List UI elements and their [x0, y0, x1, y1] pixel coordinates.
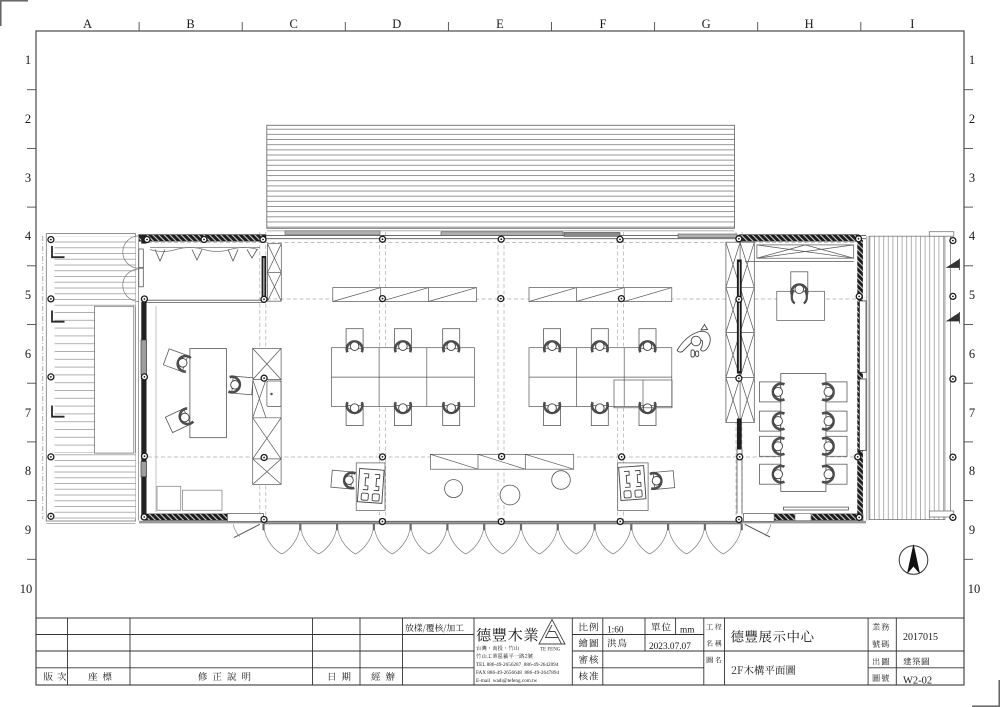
svg-text:2023.07.07: 2023.07.07 — [649, 642, 691, 652]
svg-text:E-mail wadi@tefeng.com.tw: E-mail wadi@tefeng.com.tw — [476, 677, 537, 684]
svg-text:8: 8 — [25, 464, 31, 478]
svg-text:9: 9 — [25, 523, 31, 537]
svg-text:6: 6 — [969, 347, 975, 361]
svg-text:F: F — [600, 17, 607, 31]
svg-text:7: 7 — [969, 406, 975, 420]
svg-text:TEL 886-49-2656287 886-49-264: TEL 886-49-2656287 886-49-2642094 — [476, 662, 559, 668]
svg-text:C: C — [290, 17, 298, 31]
svg-text:10: 10 — [968, 582, 981, 596]
svg-text:5: 5 — [25, 288, 31, 302]
svg-text:4: 4 — [969, 229, 976, 243]
svg-text:B: B — [186, 17, 194, 31]
svg-text:I: I — [910, 17, 914, 31]
svg-text:3: 3 — [969, 171, 975, 185]
svg-text:2: 2 — [25, 112, 31, 126]
svg-text:E: E — [496, 17, 504, 31]
svg-text:10: 10 — [20, 582, 33, 596]
svg-text:TE FENG: TE FENG — [540, 648, 561, 653]
svg-text:3: 3 — [25, 171, 31, 185]
svg-text:1:60: 1:60 — [607, 626, 624, 636]
svg-text:9: 9 — [969, 523, 975, 537]
svg-text:W2-02: W2-02 — [903, 676, 932, 687]
svg-text:1: 1 — [25, 53, 31, 67]
svg-text:2: 2 — [969, 112, 975, 126]
svg-text:mm: mm — [680, 626, 695, 636]
svg-text:6: 6 — [25, 347, 31, 361]
svg-text:1: 1 — [969, 53, 975, 67]
svg-text:A: A — [83, 17, 92, 31]
svg-text:FAX 886-49-2656648 886-49-264: FAX 886-49-2656648 886-49-2647894 — [476, 670, 559, 676]
svg-text:8: 8 — [969, 464, 975, 478]
svg-text:G: G — [702, 17, 711, 31]
svg-text:D: D — [392, 17, 401, 31]
svg-text:H: H — [805, 17, 814, 31]
svg-text:2017015: 2017015 — [903, 632, 938, 643]
svg-text:5: 5 — [969, 288, 975, 302]
svg-text:4: 4 — [25, 229, 32, 243]
svg-text:7: 7 — [25, 406, 31, 420]
